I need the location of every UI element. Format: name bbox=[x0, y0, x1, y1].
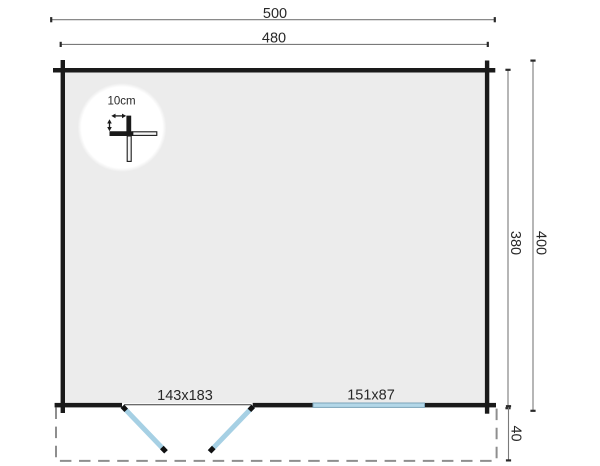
svg-text:480: 480 bbox=[262, 31, 286, 47]
svg-text:40: 40 bbox=[508, 425, 524, 441]
svg-text:143x183: 143x183 bbox=[157, 388, 213, 404]
svg-text:500: 500 bbox=[263, 6, 287, 22]
svg-text:10cm: 10cm bbox=[107, 96, 135, 108]
svg-text:400: 400 bbox=[533, 231, 549, 255]
svg-text:380: 380 bbox=[507, 231, 523, 255]
svg-text:151x87: 151x87 bbox=[347, 388, 395, 404]
